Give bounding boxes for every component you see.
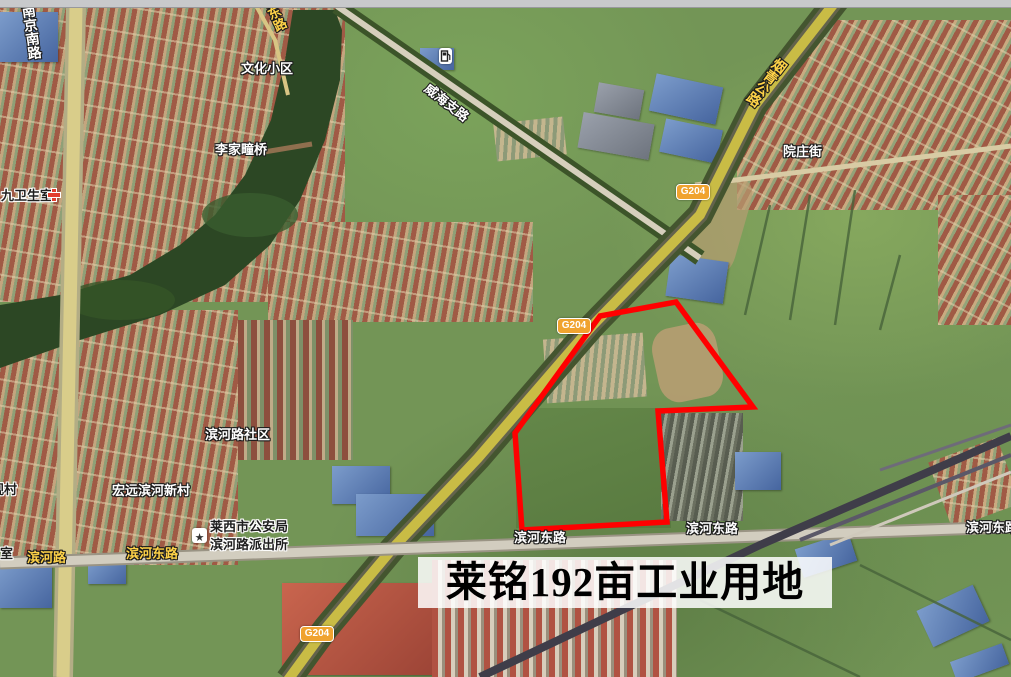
gas-station-icon[interactable]: [439, 48, 452, 64]
g204-route-badge: G204: [300, 626, 334, 642]
label-binhe-east-road: 滨河东路: [966, 521, 1011, 535]
label-binhe-road: 滨河路: [27, 551, 66, 565]
g204-route-badge: G204: [557, 318, 591, 334]
label-binhe-east-road: 滨河东路: [514, 531, 566, 545]
label-guancun-village: 观村: [0, 483, 17, 497]
parcel-title-overlay: 莱铭192亩工业用地: [418, 557, 832, 608]
clinic-cross-icon[interactable]: [48, 189, 60, 201]
label-police-station-line2: 滨河路派出所: [210, 538, 288, 552]
road-weihai-branch: [337, 6, 700, 258]
river-trees: [202, 193, 298, 237]
star-icon: ★: [195, 532, 205, 544]
label-hongyuan-village: 宏远滨河新村: [112, 484, 190, 498]
label-clinic: 九卫生室: [1, 189, 53, 203]
river-trees: [65, 280, 175, 320]
label-binhe-east-road: 滨河东路: [126, 547, 178, 561]
label-police-station-line1: 莱西市公安局: [210, 520, 288, 534]
fuel-pump-glyph: [439, 48, 452, 64]
label-lijiatuan-bridge: 李家疃桥: [215, 143, 267, 157]
label-binhe-community: 滨河路社区: [205, 428, 270, 442]
satellite-map-canvas[interactable]: 南京南路 文化东路 文化小区 李家疃桥 威海支路 烟青公路 院庄街 九卫生室 滨…: [0, 0, 1011, 677]
window-edge-strip: [0, 0, 1011, 8]
g204-route-badge: G204: [676, 184, 710, 200]
label-binhe-east-road: 滨河东路: [686, 522, 738, 536]
label-wenhua-community: 文化小区: [241, 62, 293, 76]
police-station-icon[interactable]: ★: [192, 528, 207, 543]
label-partial-room: 室: [0, 547, 13, 561]
parcel-outline: [515, 302, 753, 530]
label-yuanzhuang-street: 院庄街: [783, 145, 822, 159]
